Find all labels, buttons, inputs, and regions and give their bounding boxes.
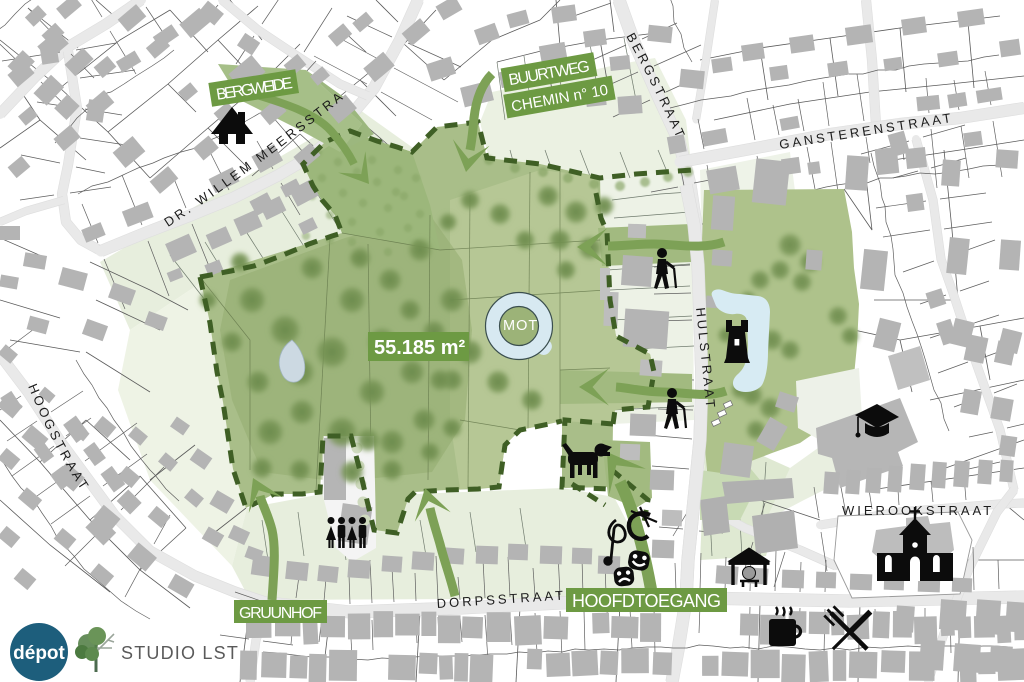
svg-text:MOT: MOT <box>503 318 538 334</box>
svg-text:GRUUNHOF: GRUUNHOF <box>239 605 322 622</box>
svg-text:dépot: dépot <box>13 643 65 664</box>
svg-text:55.185 m²: 55.185 m² <box>374 337 466 359</box>
svg-text:HOOFDTOEGANG: HOOFDTOEGANG <box>572 591 721 611</box>
svg-text:STUDIO LST: STUDIO LST <box>121 643 239 663</box>
